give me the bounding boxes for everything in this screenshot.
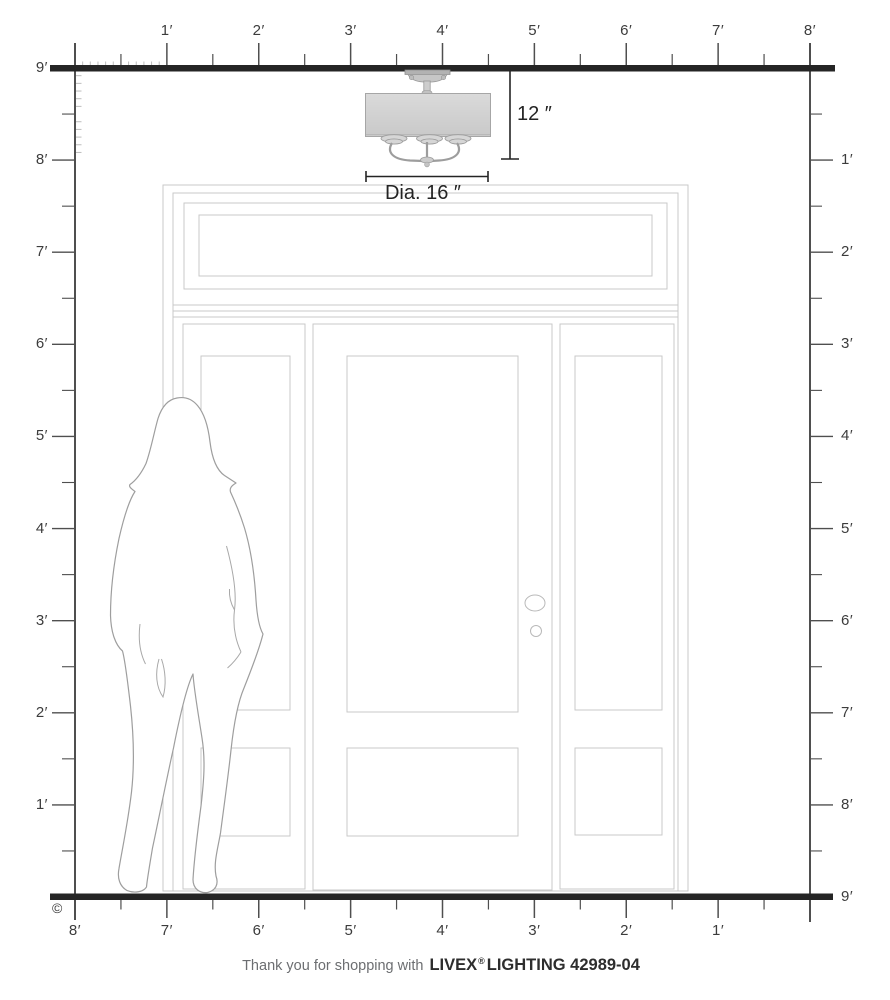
fixture-canopy-knob [441,75,445,79]
right-ruler-label: 4′ [841,428,881,444]
left-ruler-label: 7′ [8,244,48,260]
bottom-ruler-label: 8′ [55,923,95,939]
transom-glass [199,215,652,276]
bottom-ruler-label: 7′ [147,923,187,939]
left-ruler-label: 5′ [8,428,48,444]
bottom-ruler-label: 2′ [606,923,646,939]
right-ruler-label: 9′ [841,889,881,905]
fixture-canopy-knob [409,75,413,79]
door-upper-panel [347,356,518,712]
right-ruler-label: 6′ [841,613,881,629]
top-ruler-label: 8′ [790,23,830,39]
fixture-diameter-dimension-label: Dia. 16 ″ [358,182,488,205]
woman-outline [111,398,264,893]
bottom-ruler-label: 6′ [239,923,279,939]
top-ruler-label: 7′ [698,23,738,39]
right-ruler-label: 3′ [841,336,881,352]
left-ruler-label: 1′ [8,797,48,813]
top-ruler-label: 2′ [239,23,279,39]
bottom-ruler-label: 5′ [331,923,371,939]
top-ruler-label: 6′ [606,23,646,39]
left-ruler-label: 3′ [8,613,48,629]
footer-note: Thank you for shopping withLIVEX®LIGHTIN… [0,956,882,975]
woman-silhouette [111,398,264,893]
footer-model-number: LIGHTING 42989-04 [487,956,640,974]
right-sidelight-lower-panel [575,748,662,835]
floor-line [50,894,833,901]
registered-trademark-icon: ® [478,956,485,966]
right-ruler-label: 8′ [841,797,881,813]
fixture-finial [425,162,430,167]
ceiling-light-fixture [366,70,491,167]
left-ruler-label: 6′ [8,336,48,352]
right-ruler-label: 7′ [841,705,881,721]
bottom-ruler-label: 3′ [514,923,554,939]
left-ruler-label: 8′ [8,152,48,168]
bottom-ruler-label: 4′ [423,923,463,939]
top-ruler-label: 5′ [514,23,554,39]
copyright-symbol: © [52,900,62,916]
diameter-dimension-line [366,171,488,182]
right-sidelight [560,324,674,889]
right-ruler-label: 2′ [841,244,881,260]
entry-door [313,324,552,890]
top-ruler-label: 1′ [147,23,187,39]
diagram-art [0,0,890,1000]
fixture-height-dimension-label: 12 ″ [517,103,552,126]
bottom-ruler-label: 1′ [698,923,738,939]
fixture-drum-shade [366,94,491,137]
top-ruler-label: 3′ [331,23,371,39]
door-handle-icon [525,595,545,611]
door-deadbolt-icon [531,626,542,637]
left-ruler-label: 9′ [8,60,48,76]
left-ruler-label: 2′ [8,705,48,721]
left-ruler-label: 4′ [8,521,48,537]
right-sidelight-upper-panel [575,356,662,710]
fixture-canopy [405,70,450,75]
footer-thanks-text: Thank you for shopping with [242,958,423,974]
top-ruler-label: 4′ [423,23,463,39]
size-diagram: 1′2′3′4′5′6′7′8′ 9′8′7′6′5′4′3′2′1′ 1′2′… [0,0,890,1000]
right-ruler-label: 1′ [841,152,881,168]
door-lower-panel [347,748,518,836]
footer-brand-name: LIVEX [429,956,477,974]
right-ruler-label: 5′ [841,521,881,537]
